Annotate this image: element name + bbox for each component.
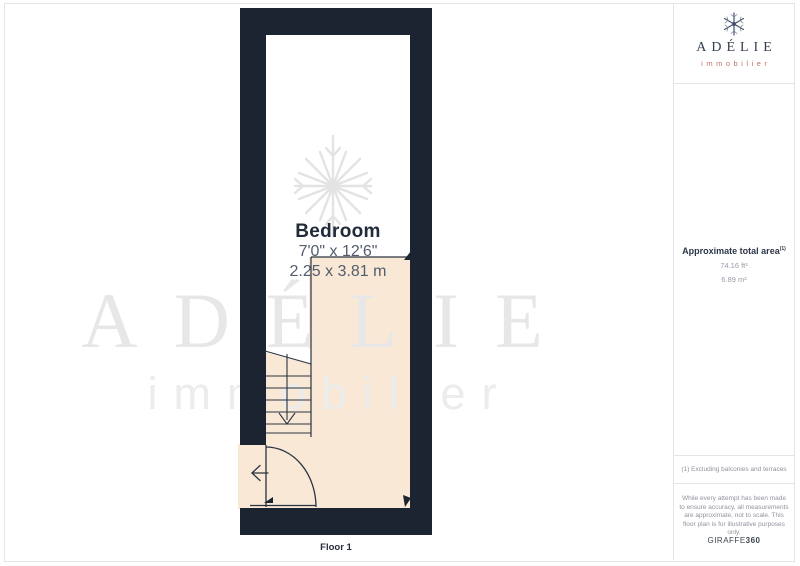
floor-label: Floor 1: [286, 542, 386, 553]
brand-tagline: immobilier: [674, 59, 794, 68]
area-value-metric: 6.89 m²: [674, 275, 794, 284]
room-dimensions-metric: 2.25 x 3.81 m: [248, 263, 428, 281]
watermark-brand: ADÉLIE: [81, 277, 579, 364]
area-footnote: (1) Excluding balconies and terraces: [674, 466, 794, 473]
sidebar-divider-footnote-bottom: [673, 483, 794, 484]
provider-logo: GIRAFFE360: [674, 536, 794, 545]
sidebar-divider-vertical: [673, 3, 674, 560]
brand-name: ADÉLIE: [674, 40, 794, 56]
area-footnote-ref: (1): [780, 246, 786, 252]
area-info: Approximate total area(1) 74.16 ft² 6.89…: [674, 246, 794, 284]
wall-bottom: [240, 508, 432, 535]
sidebar-divider-footnote-top: [673, 455, 794, 456]
room-dimensions-imperial: 7'0" x 12'6": [248, 243, 428, 261]
area-value-imperial: 74.16 ft²: [674, 261, 794, 270]
provider-suffix: 360: [746, 536, 761, 545]
logo-snowflake-icon: [721, 11, 747, 37]
area-title: Approximate total area(1): [674, 246, 794, 256]
disclaimer-text: While every attempt has been made to ens…: [679, 495, 789, 538]
sidebar-divider-logo: [673, 83, 794, 84]
area-title-text: Approximate total area: [682, 246, 780, 256]
wall-top: [240, 8, 432, 35]
floorplan-page: ADÉLIE immobilier: [0, 0, 800, 566]
room-name-label: Bedroom: [258, 221, 418, 243]
brand-logo: ADÉLIE immobilier: [674, 11, 794, 68]
watermark-tagline: immobilier: [147, 368, 512, 419]
provider-name: GIRAFFE: [707, 536, 745, 545]
